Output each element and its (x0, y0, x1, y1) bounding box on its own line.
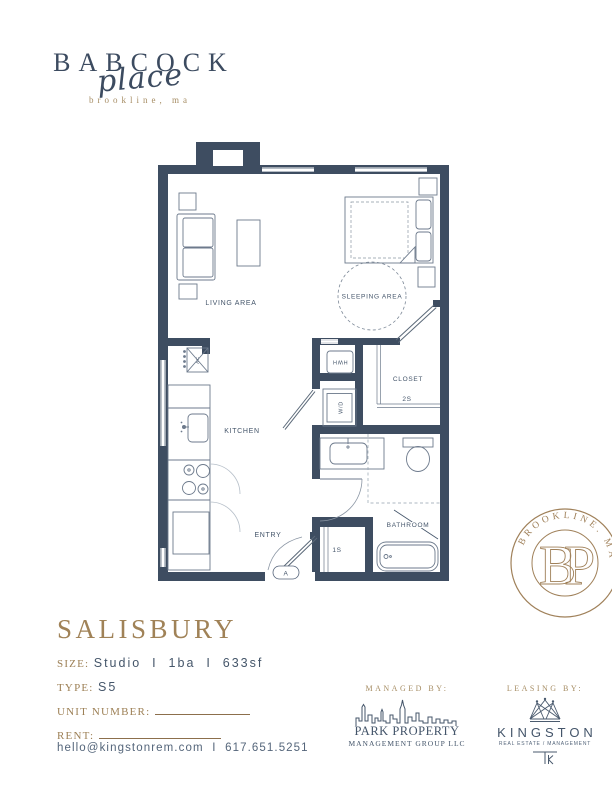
entry-label: ENTRY (254, 532, 281, 539)
cabinet-arcs (210, 464, 240, 532)
unit-name-title: SALISBURY (57, 614, 263, 645)
contact-separator (204, 742, 213, 754)
type-value: S5 (98, 680, 117, 694)
outer-walls (158, 142, 449, 581)
closet-shelf-tag: 2S (402, 396, 411, 403)
living-area-label: LIVING AREA (205, 300, 256, 307)
kingston-tk-monogram-icon (532, 751, 558, 765)
kitchen-counter (168, 348, 210, 570)
kitchen-label: KITCHEN (224, 428, 260, 435)
floor-plan-diagram: HWH W/D (150, 138, 452, 590)
kingston-subtitle: REAL ESTATE / MANAGEMENT (492, 741, 598, 747)
managed-by-heading: MANAGED BY: (343, 684, 471, 693)
bumpout-shaft (213, 150, 243, 166)
contact-phone[interactable]: 617.651.5251 (225, 742, 309, 754)
unit-number-row: UNIT NUMBER: (57, 702, 263, 720)
washer-dryer-label: W/D (339, 401, 345, 414)
kingston-name: KINGSTON (492, 725, 598, 740)
rent-label: RENT: (57, 730, 94, 742)
bathroom-label: BATHROOM (387, 522, 430, 529)
laundry-door (283, 390, 315, 430)
unit-number-blank (155, 704, 250, 715)
ac-label: AC (195, 356, 200, 364)
sleeping-area-label: SLEEPING AREA (342, 294, 403, 301)
flyer-page: BABCOCK place brookline, ma (0, 0, 612, 792)
rent-blank (99, 728, 221, 739)
unit-info: SALISBURY SIZE: Studio I 1ba I 633sf TYP… (57, 614, 263, 744)
contact-line: hello@kingstonrem.com I 617.651.5251 (57, 742, 309, 754)
living-furniture (177, 193, 260, 299)
closet-label: CLOSET (393, 376, 423, 383)
managed-by-block: MANAGED BY: PARK PROPERTY MANAGEMENT GRO… (343, 684, 471, 748)
bed-furniture (345, 178, 437, 287)
bathroom-door-arc (320, 479, 362, 521)
unit-number-label: UNIT NUMBER: (57, 706, 150, 718)
park-property-subtitle: MANAGEMENT GROUP LLC (343, 739, 471, 748)
leasing-by-heading: LEASING BY: (492, 684, 598, 693)
unit-size-row: SIZE: Studio I 1ba I 633sf (57, 654, 263, 672)
size-value: Studio I 1ba I 633sf (94, 656, 264, 670)
closet-door (396, 305, 436, 343)
park-property-skyline-icon (355, 697, 459, 727)
entry-closet-shelf-tag: 1S (332, 547, 341, 554)
contact-email[interactable]: hello@kingstonrem.com (57, 742, 204, 754)
type-label: TYPE: (57, 682, 94, 694)
leasing-by-block: LEASING BY: KINGSTON REAL ESTATE / MANAG… (492, 684, 598, 765)
park-property-name: PARK PROPERTY (343, 724, 471, 739)
size-label: SIZE: (57, 658, 89, 670)
unit-type-row: TYPE: S5 (57, 678, 263, 696)
faucet-and-knobs (181, 350, 186, 432)
entry-closet-doors (324, 527, 328, 572)
hwh-label: HWH (332, 359, 347, 365)
windows (161, 168, 428, 568)
brookline-stamp: BROOKLINE. MA B P (505, 502, 612, 624)
bathroom-clearance-dashes (368, 434, 440, 503)
stove-burners (183, 465, 210, 495)
contact-separator2 (217, 742, 226, 754)
entry-door-tag-label: A (283, 571, 288, 578)
babcock-place-logo: BABCOCK place brookline, ma (44, 48, 236, 105)
stamp-monogram-p: P (564, 535, 595, 597)
kingston-crown-icon (525, 697, 565, 723)
